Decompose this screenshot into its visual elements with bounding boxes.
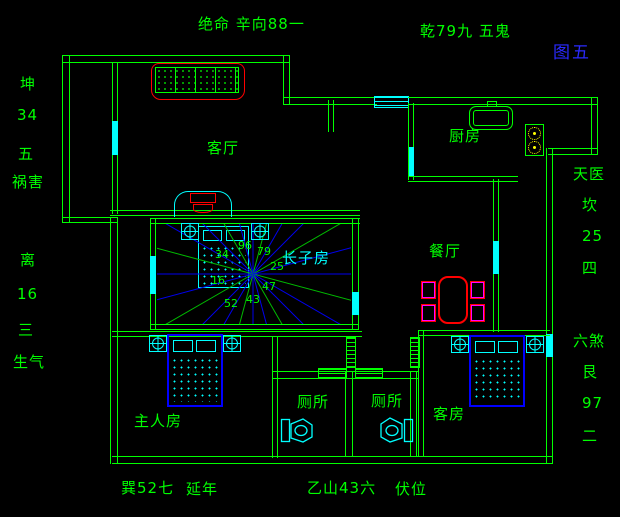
label-gen: 艮 xyxy=(582,364,598,381)
label-huohai: 祸害 xyxy=(12,174,44,191)
label-kun-num: 34 xyxy=(17,107,38,124)
label-li-num: 16 xyxy=(17,286,38,303)
label-yishan: 乙山43六 xyxy=(307,480,376,497)
label-shengqi: 生气 xyxy=(13,354,45,371)
label-kan-num: 25 xyxy=(582,228,603,245)
compass-num-nw: 34 xyxy=(215,249,229,262)
room-dining: 餐厅 xyxy=(429,243,461,260)
room-eldest-son: 长子房 xyxy=(282,250,330,267)
label-fuwei: 伏位 xyxy=(395,481,427,498)
label-liusha: 六煞 xyxy=(573,333,605,350)
compass-num-n: 96 xyxy=(238,240,252,253)
label-qian-wugui: 乾79九 五鬼 xyxy=(420,23,511,40)
compass-num-s: 43 xyxy=(246,294,260,307)
room-kitchen: 厨房 xyxy=(449,128,481,145)
floor-plan: 绝命 辛向88一乾79九 五鬼坤34五祸害离16三生气天医坎25四六煞艮97二巽… xyxy=(0,0,620,517)
room-master: 主人房 xyxy=(134,413,182,430)
compass-num-sw: 52 xyxy=(224,298,238,311)
label-kan-seq: 四 xyxy=(582,260,598,277)
label-gen-num: 97 xyxy=(582,395,603,412)
label-kan: 坎 xyxy=(582,197,598,214)
label-yannian: 延年 xyxy=(186,481,218,498)
compass-num-ne: 79 xyxy=(257,246,271,259)
room-guest: 客房 xyxy=(433,406,465,423)
label-li-seq: 三 xyxy=(18,322,34,339)
compass-num-se: 47 xyxy=(262,281,276,294)
label-xun: 巽52七 xyxy=(121,480,174,497)
label-kun-seq: 五 xyxy=(18,146,34,163)
compass-num-w: 16 xyxy=(211,275,225,288)
compass-num-e: 25 xyxy=(270,261,284,274)
annotations-layer: 绝命 辛向88一乾79九 五鬼坤34五祸害离16三生气天医坎25四六煞艮97二巽… xyxy=(0,0,620,517)
room-toilet-left: 厕所 xyxy=(297,394,329,411)
label-gen-seq: 二 xyxy=(582,428,598,445)
label-tianyi: 天医 xyxy=(573,166,605,183)
room-toilet-right: 厕所 xyxy=(371,393,403,410)
figure-number-label: 图五 xyxy=(553,38,591,63)
room-living: 客厅 xyxy=(207,140,239,157)
label-kun: 坤 xyxy=(20,76,36,93)
label-li: 离 xyxy=(20,252,36,269)
label-jueming-xinxiang: 绝命 辛向88一 xyxy=(198,16,305,33)
